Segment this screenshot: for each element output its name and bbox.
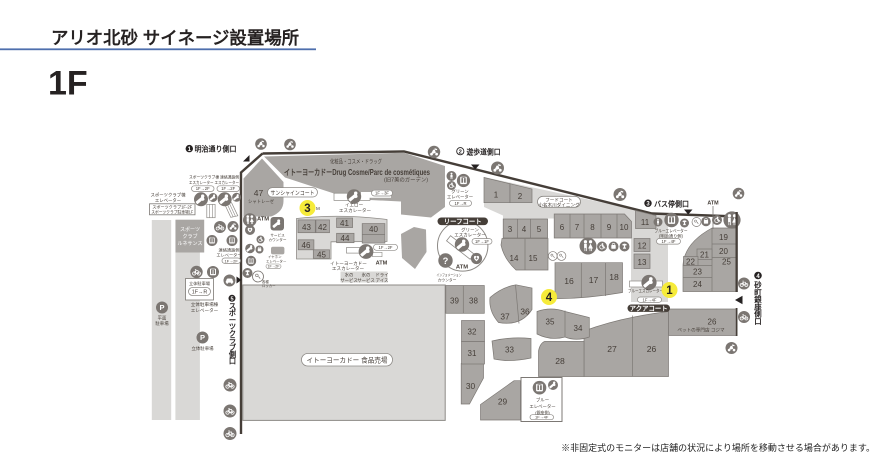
- svg-text:4: 4: [522, 225, 527, 234]
- svg-text:11: 11: [641, 218, 650, 227]
- svg-text:1F→2F: 1F→2F: [379, 245, 393, 250]
- svg-text:47: 47: [254, 188, 264, 198]
- svg-text:口: 口: [229, 357, 236, 366]
- svg-text:カウンター: カウンター: [438, 278, 457, 283]
- svg-text:1F→2F: 1F→2F: [221, 186, 235, 191]
- svg-text:1F: 1F: [48, 65, 88, 103]
- svg-text:14: 14: [510, 254, 519, 263]
- svg-text:ルネサンス: ルネサンス: [178, 241, 203, 247]
- svg-text:ブルー: ブルー: [536, 397, 549, 403]
- svg-text:スポーツ: スポーツ: [180, 226, 200, 233]
- svg-text:エスカレーター: エスカレーター: [339, 207, 372, 214]
- svg-text:イヤホン: イヤホン: [268, 254, 282, 259]
- svg-text:ロッカー: ロッカー: [262, 283, 276, 288]
- svg-text:エレベーター: エレベーター: [155, 197, 181, 204]
- svg-text:イエロー: イエロー: [345, 203, 364, 208]
- svg-text:26: 26: [647, 344, 657, 354]
- svg-text:28: 28: [555, 356, 565, 366]
- svg-text:ATM: ATM: [456, 265, 468, 271]
- svg-text:ペットの専門店 コジマ: ペットの専門店 コジマ: [677, 327, 725, 334]
- svg-text:サービス: サービス: [357, 277, 375, 284]
- svg-text:エレベーター: エレベーター: [191, 307, 219, 314]
- svg-text:サンシャインコート: サンシャインコート: [271, 190, 315, 197]
- svg-text:クラブ: クラブ: [182, 233, 197, 240]
- svg-text:スポーツクラブ駐車場1F: スポーツクラブ駐車場1F: [151, 208, 193, 215]
- svg-text:立体駐車場: 立体駐車場: [192, 345, 215, 352]
- svg-text:24: 24: [693, 280, 702, 289]
- svg-text:1F→4F: 1F→4F: [535, 415, 549, 420]
- svg-text:33: 33: [505, 346, 514, 355]
- svg-text:5: 5: [537, 225, 542, 234]
- svg-text:23: 23: [693, 268, 702, 277]
- svg-text:カウンター: カウンター: [269, 237, 287, 242]
- svg-text:39: 39: [450, 297, 459, 306]
- svg-text:3: 3: [508, 225, 513, 234]
- svg-text:29: 29: [498, 397, 508, 407]
- svg-text:シャトレーゼ: シャトレーゼ: [248, 198, 274, 204]
- svg-text:18: 18: [609, 272, 619, 282]
- svg-text:1F→R: 1F→R: [454, 201, 466, 206]
- svg-text:1F→4F: 1F→4F: [643, 297, 657, 302]
- svg-text:ブルーエスカレーター: ブルーエスカレーター: [628, 288, 663, 295]
- svg-text:1: 1: [666, 285, 673, 297]
- svg-text:エスカレーター エスカレーター: エスカレーター エスカレーター: [189, 179, 239, 186]
- svg-text:バス停側口: バス停側口: [654, 198, 689, 208]
- svg-text:立体駐車場: 立体駐車場: [189, 280, 211, 287]
- svg-text:イトーヨーカドーDrug Cosme/Parc de cos: イトーヨーカドーDrug Cosme/Parc de cosmétiques: [284, 168, 430, 177]
- svg-text:26: 26: [708, 318, 717, 327]
- svg-text:リーフコート: リーフコート: [444, 217, 482, 225]
- svg-text:イトーヨーカドー 食品売場: イトーヨーカドー 食品売場: [307, 356, 388, 365]
- svg-text:ATM: ATM: [707, 201, 719, 207]
- svg-text:1: 1: [494, 191, 499, 200]
- svg-text:エレベーター: エレベーター: [529, 403, 555, 410]
- svg-text:※非固定式のモニターは店舗の状況により場所を移動させる場合が: ※非固定式のモニターは店舗の状況により場所を移動させる場合があります。: [561, 442, 875, 453]
- svg-text:20: 20: [719, 247, 728, 256]
- svg-text:42: 42: [318, 223, 327, 232]
- svg-text:9: 9: [607, 223, 612, 232]
- svg-text:35: 35: [546, 318, 555, 327]
- svg-text:駐車場: 駐車場: [155, 320, 169, 327]
- svg-text:氷の: 氷の: [362, 272, 371, 278]
- svg-text:22: 22: [686, 258, 695, 267]
- svg-text:2: 2: [459, 150, 462, 156]
- svg-text:38: 38: [469, 297, 478, 306]
- svg-text:化粧品・コスメ・ドラッグ: 化粧品・コスメ・ドラッグ: [330, 158, 382, 166]
- svg-text:31: 31: [468, 349, 477, 358]
- svg-text:サービス: サービス: [270, 233, 285, 238]
- svg-text:1F→3F: 1F→3F: [375, 191, 389, 196]
- svg-text:1F→2F: 1F→2F: [196, 186, 210, 191]
- svg-text:1F→R: 1F→R: [192, 290, 208, 296]
- svg-text:6: 6: [560, 223, 565, 232]
- svg-text:2: 2: [518, 192, 523, 201]
- svg-text:M: M: [316, 206, 320, 211]
- svg-text:7: 7: [575, 223, 580, 232]
- svg-text:27: 27: [607, 344, 617, 354]
- svg-text:エレベーター: エレベーター: [266, 259, 287, 264]
- svg-text:41: 41: [340, 219, 349, 228]
- svg-text:30: 30: [466, 381, 476, 391]
- svg-text:ATM: ATM: [376, 261, 388, 267]
- svg-text:(旧7美のガーデン): (旧7美のガーデン): [384, 176, 428, 184]
- svg-text:エレベーター: エレベーター: [447, 193, 473, 200]
- svg-text:水の: 水の: [345, 272, 354, 278]
- svg-text:アクアコート: アクアコート: [630, 303, 668, 312]
- svg-text:44: 44: [341, 234, 350, 243]
- svg-text:4: 4: [546, 292, 553, 304]
- svg-text:8: 8: [590, 223, 595, 232]
- svg-text:21: 21: [700, 251, 709, 260]
- svg-text:25: 25: [722, 258, 731, 267]
- svg-text:15: 15: [529, 254, 538, 263]
- svg-text:小名木川ダイニング: 小名木川ダイニング: [538, 202, 580, 209]
- svg-text:40: 40: [369, 225, 378, 234]
- svg-text:1F→2F: 1F→2F: [268, 265, 281, 269]
- svg-text:10: 10: [620, 223, 629, 232]
- svg-text:遊歩道側口: 遊歩道側口: [467, 146, 501, 156]
- svg-text:12: 12: [638, 242, 647, 251]
- svg-text:46: 46: [302, 241, 311, 250]
- svg-text:13: 13: [638, 258, 647, 267]
- svg-text:19: 19: [719, 233, 728, 242]
- svg-text:37: 37: [500, 312, 510, 322]
- svg-text:45: 45: [317, 250, 326, 259]
- svg-text:32: 32: [468, 328, 477, 337]
- svg-text:1F→1F: 1F→1F: [475, 239, 489, 244]
- svg-text:エスカレーター: エスカレーター: [332, 265, 365, 272]
- svg-text:34: 34: [574, 324, 583, 333]
- svg-text:ATM: ATM: [257, 217, 269, 223]
- svg-text:1F→2F: 1F→2F: [225, 258, 239, 263]
- svg-text:43: 43: [302, 223, 311, 232]
- svg-text:1F→4F: 1F→4F: [662, 239, 676, 244]
- svg-text:アリオ北砂 サイネージ設置場所: アリオ北砂 サイネージ設置場所: [51, 28, 299, 48]
- svg-text:口: 口: [754, 317, 761, 326]
- svg-text:インフォメーション: インフォメーション: [437, 273, 462, 278]
- svg-text:サービス: サービス: [340, 277, 358, 284]
- svg-text:明治通り側口: 明治通り側口: [195, 143, 237, 153]
- svg-text:36: 36: [520, 307, 530, 317]
- svg-text:エスカレーター: エスカレーター: [454, 232, 486, 239]
- svg-text:17: 17: [589, 275, 599, 285]
- svg-text:16: 16: [564, 276, 574, 286]
- svg-text:3: 3: [304, 203, 310, 215]
